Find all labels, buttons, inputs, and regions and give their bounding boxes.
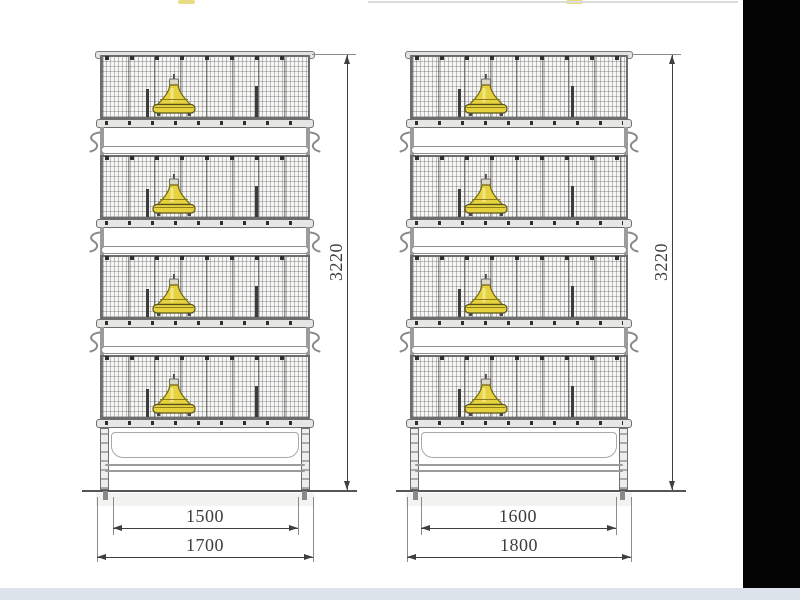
side-hook-icon [397, 131, 411, 153]
side-hook-icon [87, 231, 101, 253]
leg-stub [413, 491, 418, 500]
side-hook-icon [87, 131, 101, 153]
height-dim-label: 3220 [652, 243, 670, 281]
cage-tier [410, 55, 628, 128]
dim-extension [313, 497, 314, 562]
wire-mesh-panel [100, 155, 310, 219]
base-section [100, 428, 310, 490]
bell-drinker-icon [464, 174, 508, 219]
side-hook-icon [397, 331, 411, 353]
manure-tray [411, 346, 627, 354]
rail-ticks [415, 121, 623, 125]
bell-drinker-icon [464, 274, 508, 319]
base-belt-line [105, 470, 305, 472]
mesh-support-post [458, 189, 461, 217]
inner-width-dim-label: 1600 [499, 507, 537, 525]
outer-width-dim-line [407, 557, 631, 558]
side-hook-icon [309, 331, 323, 353]
base-post-right [619, 428, 628, 490]
manure-tray [411, 146, 627, 154]
side-hook-icon [309, 231, 323, 253]
base-manure-tray [421, 432, 617, 458]
mesh-support-post [458, 89, 461, 117]
base-manure-tray [111, 432, 299, 458]
rail-ticks [105, 321, 305, 325]
base-section [410, 428, 628, 490]
rail-ticks [105, 121, 305, 125]
side-hook-icon [627, 331, 641, 353]
top-crop-artifact [178, 0, 195, 4]
ground-shadow [96, 493, 314, 506]
cage-tier [410, 255, 628, 328]
inner-width-dim-line [421, 528, 616, 529]
mesh-clip-row [105, 156, 305, 160]
base-belt-line [415, 464, 623, 466]
wire-mesh-panel [100, 355, 310, 419]
inner-width-dim-line [113, 528, 298, 529]
manure-belt-gap [100, 228, 310, 255]
mesh-support-post [571, 86, 574, 117]
side-hook-icon [397, 231, 411, 253]
tier-rail [406, 119, 632, 128]
wire-mesh-panel [100, 255, 310, 319]
mesh-support-post [255, 286, 258, 317]
mesh-support-post [571, 386, 574, 417]
leg-stub [103, 491, 108, 500]
mesh-support-post [255, 386, 258, 417]
bell-drinker-icon [152, 374, 196, 419]
diagram-canvas: 3220 1500 1700 [0, 0, 800, 600]
mesh-clip-row [105, 56, 305, 60]
tier-rail [96, 119, 314, 128]
base-post-left [410, 428, 419, 490]
cage-tier [410, 155, 628, 228]
manure-belt-gap [100, 328, 310, 355]
manure-belt-gap [410, 328, 628, 355]
mesh-clip-row [415, 256, 623, 260]
mesh-clip-row [415, 356, 623, 360]
rail-ticks [415, 221, 623, 225]
bell-drinker-icon [152, 74, 196, 119]
mesh-clip-row [415, 56, 623, 60]
cage-tier [100, 55, 310, 128]
mesh-support-post [146, 389, 149, 417]
inner-width-dim-label: 1500 [186, 507, 224, 525]
manure-belt-gap [100, 128, 310, 155]
mesh-clip-row [105, 256, 305, 260]
rail-ticks [105, 421, 305, 425]
tier-rail [96, 219, 314, 228]
mesh-support-post [255, 86, 258, 117]
wire-mesh-panel [410, 355, 628, 419]
base-belt-line [105, 464, 305, 466]
rail-ticks [105, 221, 305, 225]
leg-stub [620, 491, 625, 500]
manure-tray [101, 146, 309, 154]
tier-rail [406, 219, 632, 228]
cage-tier [100, 155, 310, 228]
mesh-support-post [146, 89, 149, 117]
tier-rail [96, 319, 314, 328]
side-hook-icon [309, 131, 323, 153]
mesh-support-post [146, 189, 149, 217]
mesh-clip-row [415, 156, 623, 160]
wire-mesh-panel [410, 155, 628, 219]
bell-drinker-icon [152, 274, 196, 319]
mesh-support-post [458, 389, 461, 417]
tier-rail [96, 419, 314, 428]
manure-belt-gap [410, 128, 628, 155]
height-dim-line [347, 55, 348, 490]
wire-mesh-panel [410, 55, 628, 119]
dim-extension [298, 497, 299, 535]
dim-extension [97, 497, 98, 562]
dim-extension [631, 497, 632, 562]
outer-width-dim-label: 1800 [500, 536, 538, 554]
rail-ticks [415, 321, 623, 325]
outer-width-dim-line [97, 557, 313, 558]
side-hook-icon [87, 331, 101, 353]
wire-mesh-panel [100, 55, 310, 119]
mesh-clip-row [105, 356, 305, 360]
manure-tray [411, 246, 627, 254]
height-dim-line [672, 55, 673, 490]
cage-tier [100, 255, 310, 328]
mesh-support-post [255, 186, 258, 217]
mesh-support-post [146, 289, 149, 317]
height-dim-label: 3220 [327, 243, 345, 281]
tier-rail [406, 419, 632, 428]
side-hook-icon [627, 231, 641, 253]
letterbox-right-bar [743, 0, 800, 590]
manure-tray [101, 246, 309, 254]
dim-extension [616, 497, 617, 535]
manure-belt-gap [410, 228, 628, 255]
mesh-support-post [458, 289, 461, 317]
tier-rail [406, 319, 632, 328]
manure-tray [101, 346, 309, 354]
base-post-right [301, 428, 310, 490]
dim-extension [407, 497, 408, 562]
base-post-left [100, 428, 109, 490]
bell-drinker-icon [152, 174, 196, 219]
ground-shadow [406, 493, 632, 506]
bell-drinker-icon [464, 74, 508, 119]
side-hook-icon [627, 131, 641, 153]
leg-stub [302, 491, 307, 500]
cage-tier [100, 355, 310, 428]
ground-line [82, 490, 357, 492]
top-crop-line [368, 1, 738, 3]
mesh-support-post [571, 186, 574, 217]
outer-width-dim-label: 1700 [186, 536, 224, 554]
bottom-band [0, 588, 800, 600]
base-belt-line [415, 470, 623, 472]
mesh-support-post [571, 286, 574, 317]
bell-drinker-icon [464, 374, 508, 419]
ground-line [396, 490, 686, 492]
rail-ticks [415, 421, 623, 425]
cage-tier [410, 355, 628, 428]
wire-mesh-panel [410, 255, 628, 319]
